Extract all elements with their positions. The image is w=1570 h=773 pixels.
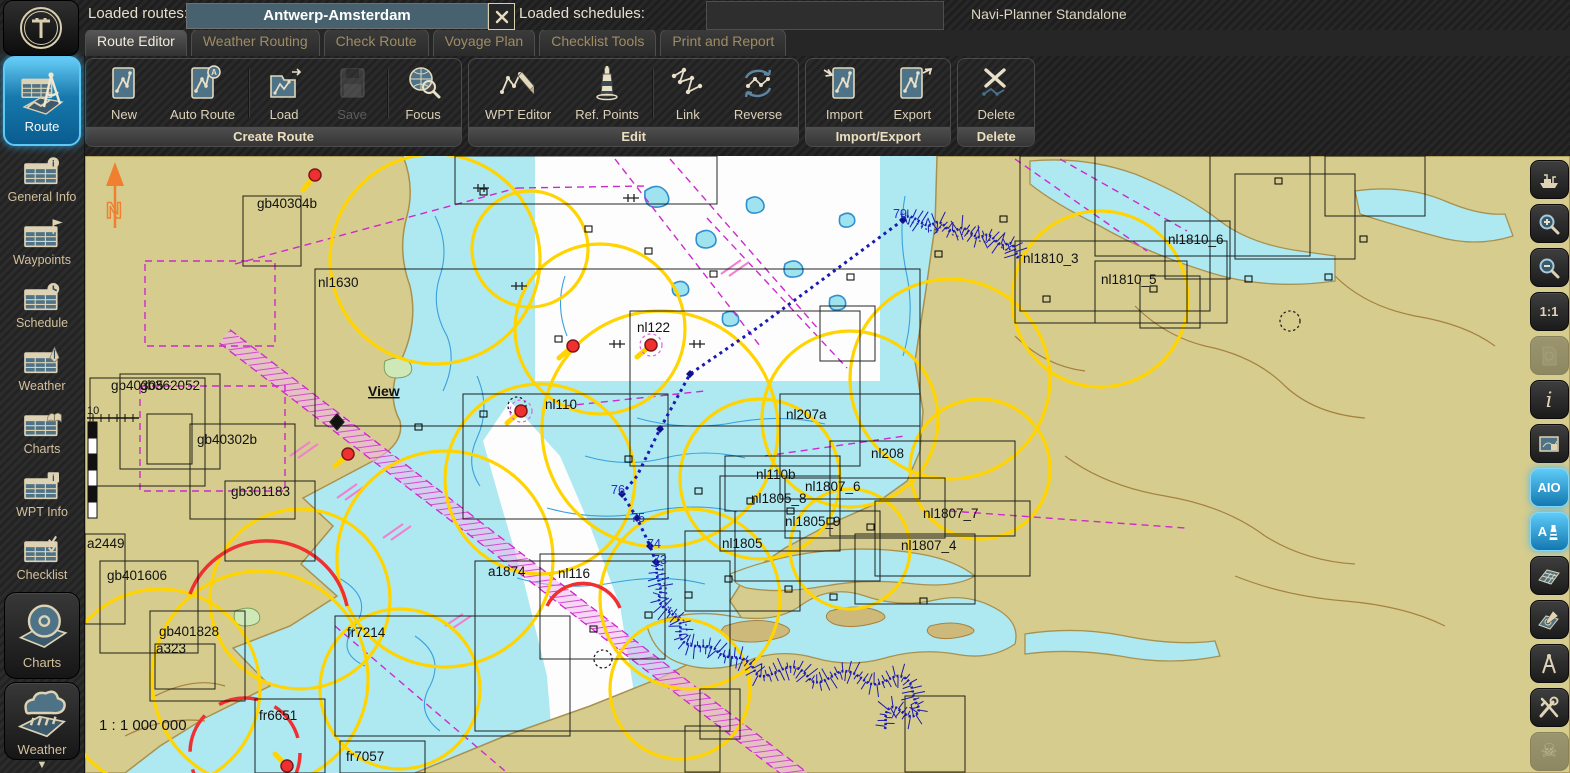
tab-route-editor[interactable]: Route Editor — [85, 29, 187, 56]
toolbar-group-delete: Delete Delete — [957, 58, 1035, 147]
chart-preview-icon — [1537, 344, 1561, 368]
toolbar-group-create-route: New A Auto Route — [85, 58, 462, 147]
checklist-icon — [21, 533, 63, 567]
svg-text:fr7057: fr7057 — [346, 749, 384, 764]
import-icon — [822, 64, 866, 104]
close-icon — [494, 9, 510, 25]
svg-text:i: i — [52, 473, 55, 483]
ribbon-toolbar: New A Auto Route — [0, 56, 1570, 156]
svg-text:fr6651: fr6651 — [259, 708, 297, 723]
svg-text:nl122: nl122 — [637, 320, 670, 335]
load-route-label: Load — [270, 107, 299, 122]
import-button[interactable]: Import — [810, 61, 878, 126]
scale-1-1-button[interactable]: 1:1 — [1530, 292, 1569, 331]
link-label: Link — [676, 107, 700, 122]
svg-text:nl1805_8: nl1805_8 — [751, 491, 807, 506]
svg-text:nl1807_4: nl1807_4 — [901, 538, 957, 553]
svg-text:74: 74 — [647, 537, 661, 551]
focus-button[interactable]: Focus — [389, 61, 457, 126]
svg-text:nl116: nl116 — [558, 566, 590, 581]
loaded-schedules-label: Loaded schedules: — [519, 5, 645, 22]
reverse-label: Reverse — [734, 107, 782, 122]
lighthouse-small-icon — [1547, 523, 1560, 541]
chart-grid-icon — [1537, 564, 1561, 588]
svg-text:79: 79 — [893, 207, 907, 221]
svg-text:nl1630: nl1630 — [318, 275, 359, 290]
schedule-icon — [21, 281, 63, 315]
tab-checklist-tools[interactable]: Checklist Tools — [539, 29, 656, 56]
zoom-in-icon — [1537, 212, 1561, 236]
tab-voyage-plan[interactable]: Voyage Plan — [433, 29, 536, 56]
waypoints-icon — [21, 218, 63, 252]
svg-text:a2449: a2449 — [87, 536, 125, 551]
group-label-create-route: Create Route — [86, 126, 461, 146]
svg-text:gb40304b: gb40304b — [257, 196, 317, 211]
general-info-icon: i — [21, 155, 63, 189]
svg-text:nl1807_6: nl1807_6 — [805, 479, 861, 494]
svg-text:1 : 1 000 000: 1 : 1 000 000 — [99, 717, 187, 734]
route-panel-icon — [18, 69, 66, 117]
svg-text:nl1805: nl1805 — [722, 536, 763, 551]
left-sidebar: Route i General Info Waypoints Schedule … — [0, 54, 85, 773]
svg-text:gb362052: gb362052 — [140, 378, 200, 393]
app-logo[interactable] — [3, 0, 79, 56]
top-bar: Loaded routes: Antwerp-Amsterdam Loaded … — [0, 0, 1570, 30]
save-route-icon — [330, 64, 374, 104]
sidebar-item-checklist[interactable]: Checklist — [0, 526, 84, 589]
delete-icon — [974, 64, 1018, 104]
svg-text:nl110: nl110 — [545, 397, 577, 412]
svg-text:A: A — [211, 68, 217, 77]
sidebar-item-route-label: Route — [25, 119, 60, 134]
load-route-button[interactable]: Load — [250, 61, 318, 126]
tools-icon — [1537, 696, 1561, 720]
sidebar-item-general-info[interactable]: i General Info — [0, 148, 84, 211]
link-button[interactable]: Link — [654, 61, 722, 126]
sidebar-item-route[interactable]: Route — [3, 56, 81, 146]
new-route-button[interactable]: New — [90, 61, 158, 126]
wpt-editor-button[interactable]: WPT Editor — [473, 61, 563, 126]
save-route-button[interactable]: Save — [318, 61, 386, 126]
svg-text:nl207a: nl207a — [786, 407, 827, 422]
loaded-schedules-select[interactable] — [706, 1, 944, 30]
save-route-label: Save — [337, 107, 367, 122]
own-ship-button[interactable] — [1530, 160, 1569, 199]
zoom-in-button[interactable] — [1530, 204, 1569, 243]
link-icon — [666, 64, 710, 104]
reverse-icon — [736, 64, 780, 104]
toolbar-group-edit: WPT Editor Ref. Points — [468, 58, 799, 147]
new-route-label: New — [111, 107, 137, 122]
svg-text:N: N — [106, 198, 122, 223]
chart-info-button[interactable]: i — [1530, 380, 1569, 419]
lighthouse-icon — [585, 64, 629, 104]
sidebar-item-label: Waypoints — [13, 253, 71, 267]
chart-notes-button[interactable] — [1530, 424, 1569, 463]
svg-text:73: 73 — [653, 553, 667, 567]
charts-icon — [21, 407, 63, 441]
sidebar-scroll-down-arrow[interactable]: ▼ — [0, 759, 84, 771]
sidebar-item-charts-library[interactable]: Charts — [4, 592, 80, 679]
delete-button[interactable]: Delete — [962, 61, 1030, 126]
skull-icon: ☠ — [1540, 740, 1557, 763]
wpt-editor-icon — [496, 64, 540, 104]
zoom-out-button[interactable] — [1530, 248, 1569, 287]
export-icon — [890, 64, 934, 104]
svg-text:76: 76 — [611, 483, 625, 497]
svg-text:gb40302b: gb40302b — [197, 432, 257, 447]
chart-notes-icon — [1537, 432, 1561, 456]
dividers-icon — [1537, 652, 1561, 676]
svg-text:View: View — [368, 383, 400, 399]
sidebar-item-label: Weather — [18, 742, 67, 757]
sidebar-item-label: Charts — [24, 442, 61, 456]
loaded-routes-label: Loaded routes: — [88, 5, 188, 22]
svg-text:i: i — [52, 158, 55, 169]
weather-cloud-icon — [15, 686, 69, 740]
map-edit-icon — [1537, 608, 1561, 632]
auto-route-label: Auto Route — [170, 107, 235, 122]
svg-text:nl1810_3: nl1810_3 — [1023, 251, 1079, 266]
svg-text:gb301183: gb301183 — [231, 484, 290, 499]
tab-weather-routing[interactable]: Weather Routing — [191, 29, 320, 56]
sidebar-item-label: WPT Info — [16, 505, 68, 519]
sidebar-item-weather[interactable]: Weather — [0, 337, 84, 400]
charts-disc-icon — [16, 601, 68, 653]
svg-text:75: 75 — [631, 511, 645, 525]
sidebar-item-label: General Info — [8, 190, 77, 204]
svg-text:nl208: nl208 — [871, 446, 904, 461]
right-toolbar: 1:1 i AIO A — [1529, 160, 1569, 773]
svg-text:a1874: a1874 — [488, 564, 526, 579]
svg-text:nl1807_7: nl1807_7 — [923, 506, 979, 521]
focus-icon — [401, 64, 445, 104]
sidebar-item-charts[interactable]: Charts — [0, 400, 84, 463]
main-tab-bar: Route Editor Weather Routing Check Route… — [85, 29, 786, 56]
reverse-button[interactable]: Reverse — [722, 61, 794, 126]
sidebar-item-label: Checklist — [17, 568, 68, 582]
svg-text:gb401606: gb401606 — [107, 568, 167, 583]
ref-points-label: Ref. Points — [575, 107, 639, 122]
svg-text:gb401828: gb401828 — [159, 624, 219, 639]
tab-print-report[interactable]: Print and Report — [660, 29, 786, 56]
load-route-icon — [262, 64, 306, 104]
group-label-delete: Delete — [958, 126, 1034, 146]
sidebar-item-label: Schedule — [16, 316, 68, 330]
svg-text:fr7214: fr7214 — [347, 625, 386, 640]
toolbar-group-import-export: Import Export Import/Export — [805, 58, 951, 147]
svg-text:nl1810_5: nl1810_5 — [1101, 272, 1157, 287]
zoom-out-icon — [1537, 256, 1561, 280]
chart-edit-button[interactable] — [1530, 600, 1569, 639]
wpt-editor-label: WPT Editor — [485, 107, 551, 122]
tab-check-route[interactable]: Check Route — [324, 29, 429, 56]
chart-original-button[interactable] — [1530, 336, 1569, 375]
sidebar-item-weather-library[interactable]: Weather — [4, 682, 80, 760]
svg-text:nl1805_9: nl1805_9 — [785, 514, 841, 529]
aio-layer-button[interactable]: AIO — [1530, 468, 1569, 507]
group-label-edit: Edit — [469, 126, 798, 146]
wpt-info-icon: i — [21, 470, 63, 504]
navi-planner-window: Loaded routes: Antwerp-Amsterdam Loaded … — [0, 0, 1570, 773]
chart-coverage-button[interactable] — [1530, 556, 1569, 595]
clear-route-button[interactable] — [488, 3, 515, 30]
app-title: Navi-Planner Standalone — [971, 6, 1127, 22]
tools-button[interactable] — [1530, 688, 1569, 727]
group-label-import-export: Import/Export — [806, 126, 950, 146]
svg-text:nl1810_6: nl1810_6 — [1168, 232, 1224, 247]
aio-lights-label: A — [1538, 524, 1547, 539]
chart-canvas[interactable]: gb40304b nl1630 nl122 nl110 nl207a nl208… — [85, 156, 1570, 773]
weather-icon — [21, 344, 63, 378]
export-label: Export — [893, 107, 931, 122]
sidebar-item-schedule[interactable]: Schedule — [0, 274, 84, 337]
sidebar-item-waypoints[interactable]: Waypoints — [0, 211, 84, 274]
import-label: Import — [826, 107, 863, 122]
measure-button[interactable] — [1530, 644, 1569, 683]
svg-text:nl110b: nl110b — [756, 467, 796, 482]
loaded-routes-select[interactable]: Antwerp-Amsterdam — [186, 3, 488, 29]
auto-route-icon: A — [181, 64, 225, 104]
sidebar-item-label: Charts — [23, 655, 61, 670]
sidebar-item-wpt-info[interactable]: i WPT Info — [0, 463, 84, 526]
export-button[interactable]: Export — [878, 61, 946, 126]
ref-points-button[interactable]: Ref. Points — [563, 61, 651, 126]
sidebar-item-label: Weather — [18, 379, 65, 393]
aio-lights-button[interactable]: A — [1530, 512, 1569, 551]
auto-route-button[interactable]: A Auto Route — [158, 61, 247, 126]
focus-label: Focus — [405, 107, 440, 122]
svg-text:a323: a323 — [156, 641, 186, 656]
dangers-button[interactable]: ☠ — [1530, 732, 1569, 771]
delete-label: Delete — [977, 107, 1015, 122]
transas-logo-icon — [18, 5, 64, 51]
ship-icon — [1537, 168, 1561, 192]
